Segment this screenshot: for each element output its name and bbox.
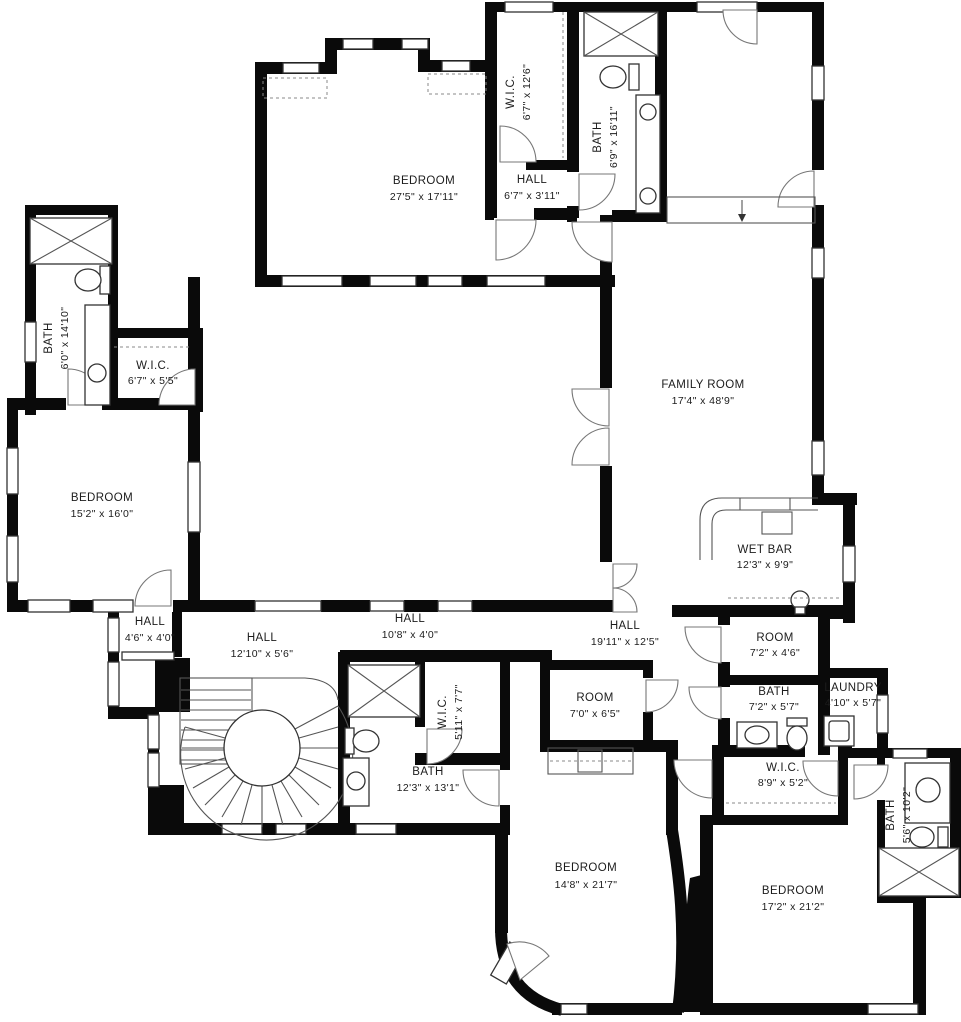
sink-vanity — [343, 758, 369, 806]
room-label-bedroom-top: BEDROOM 27'5" x 17'11" — [390, 175, 458, 203]
window — [25, 322, 36, 362]
room-name: HALL — [135, 616, 166, 628]
room-name: BEDROOM — [762, 885, 824, 897]
room-name: FAMILY ROOM — [661, 379, 744, 391]
shower — [584, 12, 658, 56]
window — [487, 276, 545, 286]
door-arc — [854, 765, 888, 799]
window — [442, 61, 470, 71]
room-name: BEDROOM — [71, 492, 133, 504]
room-dims: 6'7" x 3'11" — [504, 190, 560, 202]
room-label-hall-mid: HALL 10'8" x 4'0" — [382, 613, 439, 641]
room-name: BATH — [412, 766, 443, 778]
window — [93, 600, 133, 612]
room-dims: 6'7" x 5'5" — [128, 375, 178, 387]
window — [438, 601, 472, 611]
window — [7, 536, 18, 582]
room-label-hall-small: HALL 4'6" x 4'0" — [125, 616, 175, 644]
door-arc — [135, 570, 171, 606]
room-name: W.I.C. — [136, 360, 170, 372]
room-label-wet-bar: WET BAR 12'3" x 9'9" — [737, 544, 794, 571]
room-name: BATH — [43, 322, 55, 353]
window — [148, 715, 159, 749]
door-arc — [613, 564, 637, 588]
shower — [30, 218, 112, 264]
room-label-hall-large: HALL 19'11" x 12'5" — [591, 620, 659, 648]
window — [255, 601, 321, 611]
door-arc — [674, 760, 712, 798]
overhang-outline — [263, 78, 327, 98]
window — [505, 2, 553, 12]
room-name: LAUNDRY — [824, 682, 882, 694]
window — [893, 749, 927, 758]
sink-vanity — [85, 305, 110, 405]
room-label-hall-top: HALL 6'7" x 3'11" — [504, 174, 560, 202]
room-name: HALL — [610, 620, 641, 632]
room-dims: 14'8" x 21'7" — [555, 879, 618, 891]
room-name: W.I.C. — [766, 762, 800, 774]
window — [188, 462, 200, 532]
toilet — [787, 718, 807, 750]
room-name: BATH — [885, 799, 897, 830]
window — [7, 448, 18, 494]
room-dims: 4'10" x 5'7" — [825, 697, 882, 709]
door-arc — [579, 174, 615, 210]
door-arc — [685, 627, 721, 663]
floor-plan-page: BEDROOM 27'5" x 17'11" W.I.C. 6'7" x 12'… — [0, 0, 961, 1022]
room-label-hall-center: HALL 12'10" x 5'6" — [231, 632, 294, 660]
room-name: BEDROOM — [393, 175, 455, 187]
room-dims: 5'6" x 10'2" — [901, 787, 913, 844]
room-label-bath-upper-left: BATH 6'0" x 14'10" — [43, 307, 71, 370]
room-dims: 17'2" x 21'2" — [762, 901, 825, 913]
door-arc — [803, 761, 838, 796]
window — [843, 546, 855, 582]
room-label-laundry: LAUNDRY 4'10" x 5'7" — [824, 682, 882, 709]
room-label-bedroom-bottom-right: BEDROOM 17'2" x 21'2" — [762, 885, 825, 913]
window — [561, 1004, 587, 1014]
shower — [348, 665, 420, 717]
window — [108, 618, 119, 652]
door-arc — [723, 10, 757, 44]
window — [282, 276, 342, 286]
room-dims: 6'7" x 12'6" — [521, 64, 533, 121]
room-dims: 7'0" x 6'5" — [570, 708, 620, 720]
window — [428, 276, 462, 286]
room-dims: 17'4" x 48'9" — [672, 395, 735, 407]
toilet — [600, 64, 639, 90]
room-dims: 12'3" x 9'9" — [737, 559, 794, 571]
sink-vanity — [737, 722, 777, 748]
room-name: HALL — [517, 174, 548, 186]
door-arc — [613, 588, 637, 612]
room-name: BATH — [758, 686, 789, 698]
room-name: BATH — [592, 121, 604, 152]
door-arc — [572, 222, 612, 262]
room-name: W.I.C. — [437, 695, 449, 729]
door-arc — [689, 687, 721, 719]
room-label-bedroom-left: BEDROOM 15'2" x 16'0" — [71, 492, 134, 520]
room-name: W.I.C. — [505, 75, 517, 109]
room-dims: 5'11" x 7'7" — [453, 684, 465, 740]
room-dims: 12'10" x 5'6" — [231, 648, 294, 660]
shower — [879, 848, 959, 896]
walls-layer — [7, 2, 961, 1015]
window — [343, 39, 373, 49]
window — [370, 601, 404, 611]
room-label-wic-upper-left: W.I.C. 6'7" x 5'5" — [128, 360, 178, 387]
room-dims: 12'3" x 13'1" — [397, 782, 460, 794]
window — [222, 824, 262, 834]
window — [370, 276, 416, 286]
toilet — [910, 827, 948, 847]
windows-layer — [7, 2, 927, 1014]
room-label-room-right: ROOM 7'2" x 4'6" — [750, 632, 800, 659]
room-label-bath-center: BATH 12'3" x 13'1" — [397, 766, 460, 794]
room-dims: 7'2" x 5'7" — [749, 701, 799, 713]
door-arc — [572, 428, 609, 465]
room-name: ROOM — [756, 632, 793, 644]
stair-newel — [224, 710, 300, 786]
room-name: HALL — [395, 613, 426, 625]
window — [148, 753, 159, 787]
floor-plan: BEDROOM 27'5" x 17'11" W.I.C. 6'7" x 12'… — [0, 0, 961, 1022]
door-arc — [463, 770, 499, 806]
room-dims: 10'8" x 4'0" — [382, 629, 439, 641]
room-dims: 15'2" x 16'0" — [71, 508, 134, 520]
window — [28, 600, 70, 612]
room-dims: 8'9" x 5'2" — [758, 777, 808, 789]
room-label-family-room: FAMILY ROOM 17'4" x 48'9" — [661, 379, 744, 407]
room-dims: 7'2" x 4'6" — [750, 647, 800, 659]
door-arc — [500, 126, 536, 162]
door-arc — [646, 680, 678, 712]
sink-vanity — [636, 95, 660, 213]
room-label-room-center: ROOM 7'0" x 6'5" — [570, 692, 620, 720]
room-label-bath-bottom-right: BATH 5'6" x 10'2" — [885, 787, 913, 844]
room-name: HALL — [247, 632, 278, 644]
window — [868, 1004, 918, 1014]
room-dims: 27'5" x 17'11" — [390, 191, 458, 203]
room-name: WET BAR — [738, 544, 793, 556]
window — [812, 248, 824, 278]
window — [356, 824, 396, 834]
toilet — [345, 728, 379, 754]
room-label-bedroom-bottom: BEDROOM 14'8" x 21'7" — [555, 862, 618, 891]
door-arc — [572, 389, 609, 426]
spiral-staircase — [180, 678, 353, 840]
room-label-bath-right: BATH 7'2" x 5'7" — [749, 686, 799, 713]
room-dims: 6'9" x 16'11" — [608, 106, 620, 168]
room-label-bath-top: BATH 6'9" x 16'11" — [592, 106, 620, 168]
door-arc — [496, 220, 536, 260]
washer — [824, 716, 854, 746]
room-label-wic-top: W.I.C. 6'7" x 12'6" — [505, 64, 533, 121]
room-dims: 6'0" x 14'10" — [59, 307, 71, 370]
window — [812, 441, 824, 475]
room-label-wic-right: W.I.C. 8'9" x 5'2" — [758, 762, 808, 789]
door-arc — [778, 171, 814, 207]
window — [122, 652, 174, 660]
overhang-outline — [428, 74, 486, 94]
window — [812, 66, 824, 100]
room-dims: 4'6" x 4'0" — [125, 632, 175, 644]
window — [283, 63, 319, 73]
toilet — [75, 266, 110, 294]
window — [108, 662, 119, 706]
window — [402, 39, 428, 49]
room-dims: 19'11" x 12'5" — [591, 636, 659, 648]
room-name: ROOM — [576, 692, 613, 704]
room-name: BEDROOM — [555, 862, 617, 874]
